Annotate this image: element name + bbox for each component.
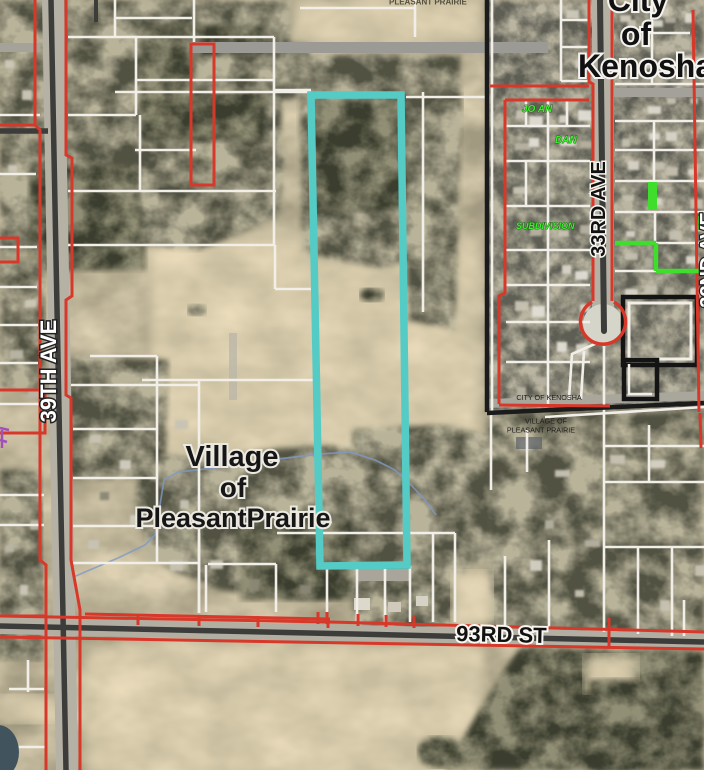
svg-text:of: of xyxy=(621,16,652,52)
svg-text:VILLAGE OF: VILLAGE OF xyxy=(525,417,568,426)
svg-text:93RD ST: 93RD ST xyxy=(456,621,548,648)
svg-text:33RD AVE: 33RD AVE xyxy=(588,161,610,257)
svg-text:PLEASANT PRAIRIE: PLEASANT PRAIRIE xyxy=(507,426,575,435)
svg-text:DAN: DAN xyxy=(555,135,577,146)
svg-text:JO AN: JO AN xyxy=(522,104,553,115)
svg-text:32ND AVE: 32ND AVE xyxy=(697,212,704,308)
svg-text:PleasantPrairie: PleasantPrairie xyxy=(135,503,330,533)
svg-text:CITY OF KENOSHA: CITY OF KENOSHA xyxy=(516,393,582,402)
svg-text:of: of xyxy=(220,472,247,503)
svg-text:39TH AVE: 39TH AVE xyxy=(36,320,61,423)
svg-text:SUBDIVISION: SUBDIVISION xyxy=(516,221,575,231)
svg-text:PLEASANT PRAIRIE: PLEASANT PRAIRIE xyxy=(389,0,467,7)
svg-text:Village: Village xyxy=(186,441,279,473)
svg-text:Kenosha: Kenosha xyxy=(578,48,704,84)
